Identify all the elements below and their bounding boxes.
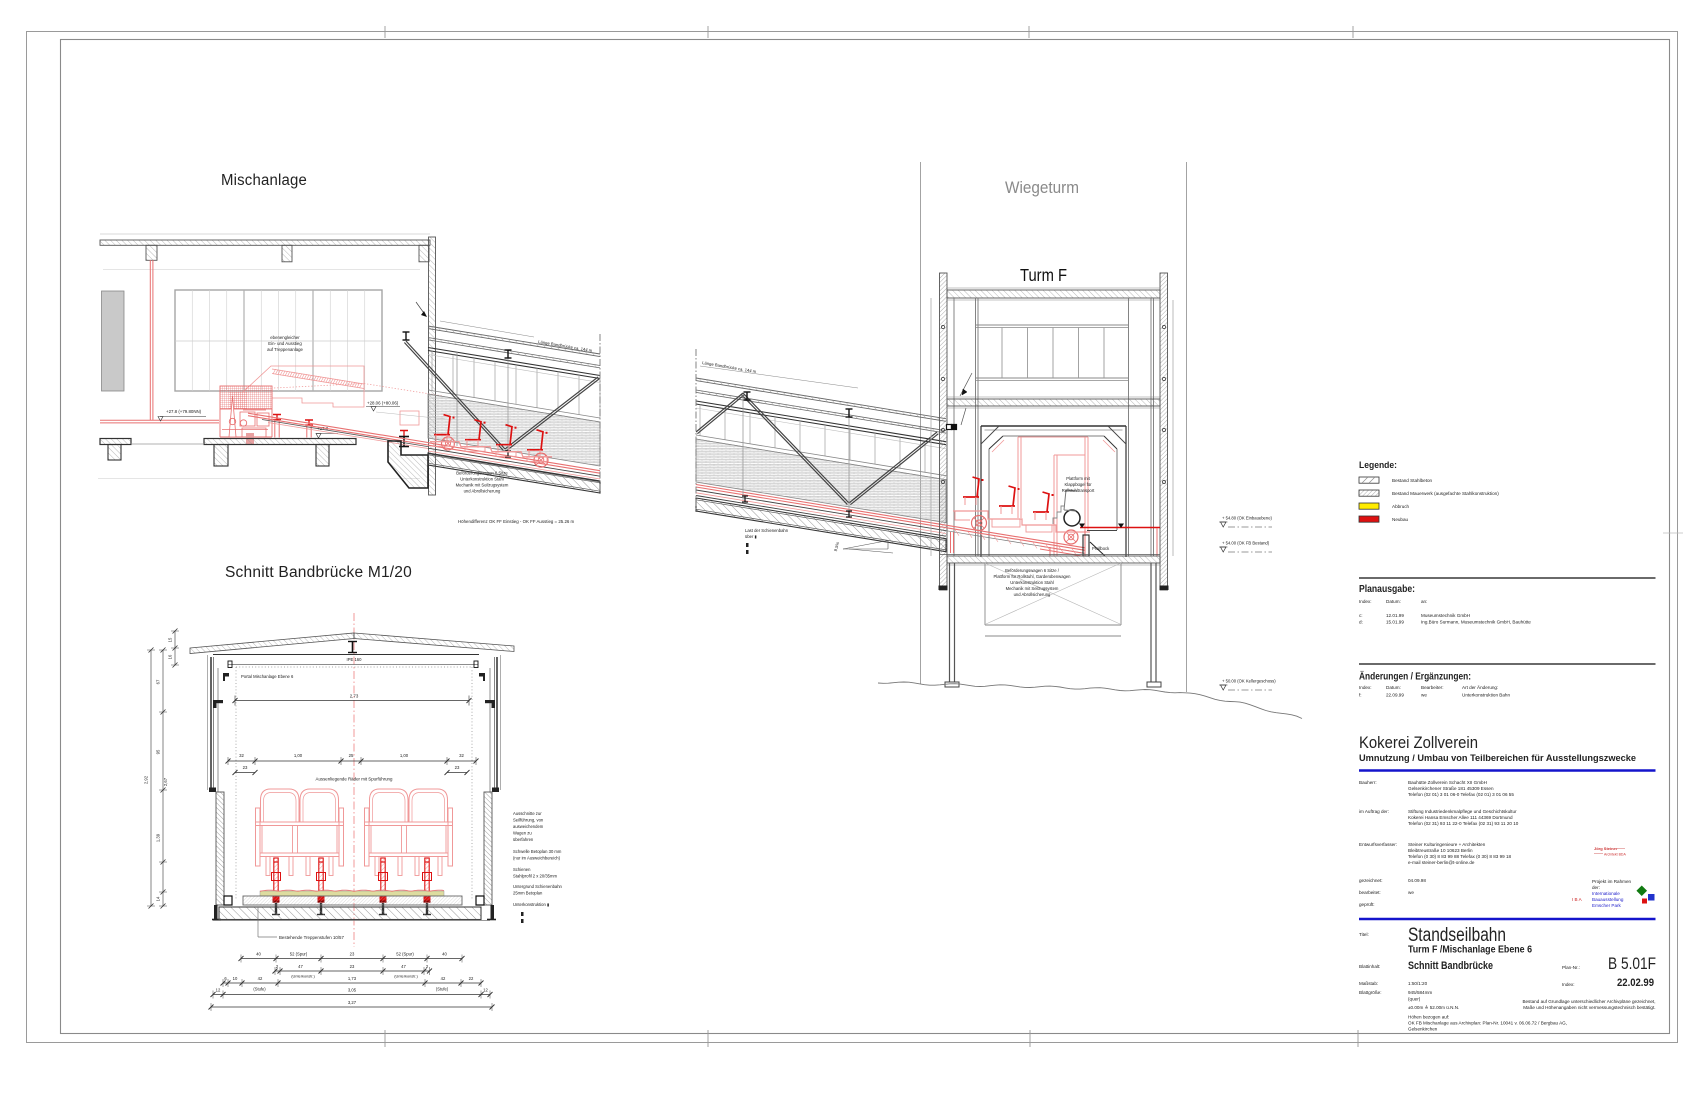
svg-text:1,39: 1,39 (156, 833, 161, 842)
svg-text:Wagen zu: Wagen zu (513, 831, 532, 836)
svg-text:12: 12 (216, 988, 221, 993)
svg-text:ausweichendem: ausweichendem (513, 824, 544, 829)
svg-text:(Unterkonstr.): (Unterkonstr.) (291, 974, 315, 979)
svg-text:f:: f: (1359, 693, 1362, 698)
svg-text:Mechanik mit Seilzugsystem: Mechanik mit Seilzugsystem (1006, 586, 1059, 591)
svg-text:über ▮: über ▮ (745, 534, 757, 539)
svg-text:Turm F: Turm F (1020, 265, 1067, 285)
svg-text:12: 12 (483, 988, 488, 993)
svg-text:Emscher Park: Emscher Park (1592, 903, 1622, 908)
svg-text:Schnitt Bandbrücke: Schnitt Bandbrücke (1408, 960, 1493, 972)
svg-text:der:: der: (1592, 885, 1600, 890)
svg-text:42: 42 (441, 976, 446, 981)
svg-text:Bestand auf Grundlage untersch: Bestand auf Grundlage unterschiedlicher … (1522, 999, 1655, 1004)
svg-text:Umnutzung / Umbau von Teilbere: Umnutzung / Umbau von Teilbereichen für … (1359, 753, 1636, 764)
svg-text:im Auftrag der:: im Auftrag der: (1359, 809, 1389, 814)
svg-text:Entwurfsverfasser:: Entwurfsverfasser: (1359, 842, 1397, 847)
svg-text:Portal Mischanlage Ebene 6: Portal Mischanlage Ebene 6 (241, 674, 294, 679)
svg-text:(quer): (quer) (1408, 997, 1421, 1002)
svg-text:Stiftung Industriedenkmalpfleg: Stiftung Industriedenkmalpflege und Gesc… (1408, 809, 1517, 814)
svg-text:Gelsenkirchener Straße 181: Gelsenkirchener Straße 181 45309 Essen (1408, 786, 1494, 791)
svg-text:Legende:: Legende: (1359, 460, 1397, 471)
svg-text:Steiner Kulturingenieure +: Steiner Kulturingenieure + Architekten (1408, 842, 1486, 847)
svg-text:Mischanlage: Mischanlage (221, 172, 307, 189)
svg-text:23: 23 (350, 964, 355, 969)
svg-text:Last der Schienenbahn: Last der Schienenbahn (745, 528, 789, 533)
svg-text:e-mail steiner-berlin@t-onlin: e-mail steiner-berlin@t-online.de (1408, 860, 1475, 865)
svg-text:Klappbügel für: Klappbügel für (1064, 482, 1092, 487)
svg-text:1,00: 1,00 (294, 753, 303, 758)
svg-text:1,00: 1,00 (400, 753, 409, 758)
svg-text:47: 47 (401, 964, 406, 969)
svg-text:23: 23 (350, 952, 355, 957)
svg-text:Telefon (0 30) 8 83 99 88: Telefon (0 30) 8 83 99 88 Telefax (0 30)… (1408, 854, 1512, 859)
svg-text:Bauherr:: Bauherr: (1359, 780, 1377, 785)
svg-text:Plattform für Rollstuhl, Garde: Plattform für Rollstuhl, Garderobenwagen (993, 574, 1071, 579)
svg-text:Schwelle Betoplan 30 mm: Schwelle Betoplan 30 mm (513, 849, 562, 854)
svg-text:Unterkonstruktion ▮: Unterkonstruktion ▮ (513, 902, 549, 907)
svg-text:25: 25 (349, 753, 354, 758)
svg-text:Bearbeiter:: Bearbeiter: (1421, 685, 1443, 690)
svg-text:ebenengleicher: ebenengleicher (270, 335, 300, 340)
svg-text:3,27: 3,27 (348, 1000, 357, 1005)
svg-text:Blattinhalt:: Blattinhalt: (1359, 964, 1380, 969)
svg-text:42: 42 (258, 976, 263, 981)
svg-text:3,05: 3,05 (348, 988, 357, 993)
svg-text:Neubau: Neubau (1392, 517, 1409, 522)
svg-text:Telefon (02 31) 93 11 22-0: Telefon (02 31) 93 11 22-0 Telefax (02 3… (1408, 821, 1519, 826)
svg-text:Architekt BDA: Architekt BDA (1604, 853, 1626, 857)
svg-text:Index:: Index: (1562, 982, 1575, 987)
svg-text:Turm F /Mischanlage Ebene 6: Turm F /Mischanlage Ebene 6 (1408, 944, 1532, 956)
svg-text:Abbruch: Abbruch (1392, 504, 1410, 509)
svg-text:95: 95 (156, 749, 161, 754)
svg-text:12.01.99: 12.01.99 (1386, 613, 1404, 618)
svg-text:Telefon (02 01) 3 01 06-0: Telefon (02 01) 3 01 06-0 Telefax (02 01… (1408, 792, 1514, 797)
svg-text:we: we (1421, 693, 1427, 698)
svg-text:Bestand Mauerwerk (ausgefachte: Bestand Mauerwerk (ausgefachte Stahlkons… (1392, 491, 1499, 496)
svg-text:Index:: Index: (1359, 599, 1372, 604)
svg-text:1,73: 1,73 (348, 976, 357, 981)
svg-text:Plan-Nr.:: Plan-Nr.: (1562, 965, 1580, 970)
svg-text:Höhendifferenz OK FF Einstieg: Höhendifferenz OK FF Einstieg - OK FF Au… (458, 519, 575, 524)
svg-text:bearbeitet:: bearbeitet: (1359, 890, 1381, 895)
svg-text:Unterkonstruktion Stahl: Unterkonstruktion Stahl (460, 477, 504, 482)
svg-text:Gelsenkirchen: Gelsenkirchen (1408, 1027, 1438, 1032)
svg-text:15: 15 (168, 637, 173, 642)
svg-text:32: 32 (239, 753, 244, 758)
svg-text:2,92: 2,92 (144, 775, 149, 784)
svg-text:Internationale: Internationale (1592, 891, 1620, 896)
svg-text:52 (Spur): 52 (Spur) (396, 952, 414, 957)
svg-text:und Abrollsicherung: und Abrollsicherung (1014, 592, 1051, 597)
svg-text:Ein- und Ausstieg: Ein- und Ausstieg (268, 341, 302, 346)
svg-text:Museumstechnik GmbH: Museumstechnik GmbH (1421, 613, 1470, 618)
svg-text:47: 47 (298, 964, 303, 969)
svg-text:+ 50.00 (OK Kellergeschoss): + 50.00 (OK Kellergeschoss) (1222, 679, 1276, 684)
svg-text:23: 23 (455, 765, 460, 770)
svg-text:an:: an: (1421, 599, 1427, 604)
svg-text:Rollstuhltransport: Rollstuhltransport (1062, 488, 1095, 493)
svg-text:Ausschnitte zur: Ausschnitte zur (513, 811, 542, 816)
svg-text:22: 22 (469, 976, 474, 981)
svg-text:Maße und Höhenangaben nicht ve: Maße und Höhenangaben nicht vermessungst… (1523, 1005, 1655, 1010)
svg-text:1:50/1:20: 1:50/1:20 (1408, 981, 1428, 986)
svg-text:Jörg Steiner: Jörg Steiner (1594, 846, 1618, 851)
svg-text:c:: c: (1359, 613, 1363, 618)
svg-text:40: 40 (256, 952, 261, 957)
svg-text:Planausgabe:: Planausgabe: (1359, 584, 1415, 595)
svg-text:32: 32 (459, 753, 464, 758)
svg-text:(Stufe): (Stufe) (436, 987, 449, 992)
svg-text:Bauhütte Zollverein Schacht XI: Bauhütte Zollverein Schacht XII GmbH (1408, 780, 1487, 785)
svg-text:2,67: 2,67 (163, 777, 168, 786)
svg-text:Unterkonstruktion Stahl: Unterkonstruktion Stahl (1010, 580, 1054, 585)
svg-text:Beförderungswagen 6 Sitze /: Beförderungswagen 6 Sitze / (1005, 568, 1060, 573)
svg-text:Aussenliegende Räder mit Spurf: Aussenliegende Räder mit Spurführung (316, 777, 393, 782)
svg-text:22.09.99: 22.09.99 (1386, 693, 1404, 698)
svg-text:IPE 160: IPE 160 (347, 657, 363, 662)
svg-text:Datum:: Datum: (1386, 599, 1401, 604)
svg-text:Kokerei Zollverein: Kokerei Zollverein (1359, 733, 1478, 752)
svg-text:22.02.99: 22.02.99 (1617, 977, 1654, 989)
svg-text:Art der Änderung:: Art der Änderung: (1462, 684, 1498, 690)
svg-text:10: 10 (233, 976, 238, 981)
svg-text:Prellbock: Prellbock (1092, 546, 1110, 551)
svg-text:B 5.01F: B 5.01F (1608, 955, 1656, 973)
svg-text:Index:: Index: (1359, 685, 1372, 690)
svg-text:Wiegeturm: Wiegeturm (1005, 179, 1079, 197)
svg-text:Plattform mit: Plattform mit (1066, 476, 1090, 481)
svg-text:16: 16 (168, 654, 173, 659)
svg-text:23: 23 (243, 765, 248, 770)
svg-text:Blattgröße:: Blattgröße: (1359, 990, 1381, 995)
svg-text:Kokerei Hansa Emscher All: Kokerei Hansa Emscher Allee 111 44369 Do… (1408, 815, 1513, 820)
svg-text:geprüft:: geprüft: (1359, 902, 1375, 907)
svg-text:945/584mm: 945/584mm (1408, 990, 1432, 995)
svg-text:Projekt im Rahmen: Projekt im Rahmen (1592, 879, 1632, 884)
svg-text:(Stufe): (Stufe) (253, 987, 266, 992)
svg-text:OK FB Mischanlage aus Archivpl: OK FB Mischanlage aus Archivplan: Plan-N… (1408, 1021, 1567, 1026)
svg-text:52 (Spur): 52 (Spur) (290, 952, 308, 957)
svg-text:Bestehende Treppenstufen 10/57: Bestehende Treppenstufen 10/57 (279, 935, 344, 940)
svg-text:Maßstab:: Maßstab: (1359, 981, 1378, 986)
svg-text:+ 54.00 (OK FB Bestand): + 54.00 (OK FB Bestand) (1222, 541, 1270, 546)
svg-text:Höhen bezogen auf:: Höhen bezogen auf: (1408, 1015, 1449, 1020)
svg-text:2,73: 2,73 (350, 694, 359, 699)
svg-text:Titel:: Titel: (1359, 932, 1369, 937)
svg-text:auf Treppenanlage: auf Treppenanlage (267, 347, 303, 352)
svg-text:67: 67 (156, 679, 161, 684)
svg-text:Mechanik mit Seilzugsystem: Mechanik mit Seilzugsystem (456, 483, 509, 488)
svg-text:25mm Betoplan: 25mm Betoplan (513, 891, 543, 896)
svg-text:(Unterkonstr.): (Unterkonstr.) (394, 974, 418, 979)
svg-text:und Abrollsicherung: und Abrollsicherung (464, 489, 501, 494)
svg-text:Schienen: Schienen (513, 867, 531, 872)
svg-text:Änderungen / Ergänzungen:: Änderungen / Ergänzungen: (1359, 670, 1471, 683)
svg-text:±0.00m ≙ 52.00m ü.N.N.: ±0.00m ≙ 52.00m ü.N.N. (1408, 1004, 1459, 1010)
svg-text:40: 40 (442, 952, 447, 957)
svg-text:Seilführung, von: Seilführung, von (513, 818, 544, 823)
svg-text:+28.06 (+80.06): +28.06 (+80.06) (367, 401, 399, 406)
svg-text:d:: d: (1359, 620, 1363, 625)
svg-text:we: we (1408, 890, 1414, 895)
svg-text:Stahlprofil 2 x 20/35mm: Stahlprofil 2 x 20/35mm (513, 874, 558, 879)
svg-text:Schnitt Bandbrücke M1/20: Schnitt Bandbrücke M1/20 (225, 564, 412, 581)
svg-text:(nur im Ausweichbereich): (nur im Ausweichbereich) (513, 856, 561, 861)
svg-text:Bauausstellung: Bauausstellung (1592, 897, 1624, 902)
svg-text:14: 14 (156, 896, 161, 901)
svg-text:+ 54.80 (OK Einbauebene): + 54.80 (OK Einbauebene) (1222, 516, 1273, 521)
svg-text:Bestand Stahlbeton: Bestand Stahlbeton (1392, 478, 1433, 483)
svg-text:+27.8 (+79.80NN): +27.8 (+79.80NN) (166, 409, 202, 414)
svg-text:überfahren: überfahren (513, 837, 534, 842)
svg-text:gezeichnet:: gezeichnet: (1359, 878, 1383, 883)
svg-text:Datum:: Datum: (1386, 685, 1401, 690)
svg-text:15.01.99: 15.01.99 (1386, 620, 1404, 625)
svg-text:Bleibtreustraße 10 10623: Bleibtreustraße 10 10623 Berlin (1408, 848, 1473, 853)
svg-text:I B A: I B A (1572, 897, 1583, 902)
svg-text:Untergrund Schienenbahn: Untergrund Schienenbahn (513, 884, 563, 889)
svg-text:Unterkonstruktion Bahn: Unterkonstruktion Bahn (1462, 693, 1510, 698)
svg-text:04.09.98: 04.09.98 (1408, 878, 1426, 883)
svg-text:Ing.Büro Surmann, Museumstechn: Ing.Büro Surmann, Museumstechnik GmbH, B… (1421, 620, 1531, 625)
